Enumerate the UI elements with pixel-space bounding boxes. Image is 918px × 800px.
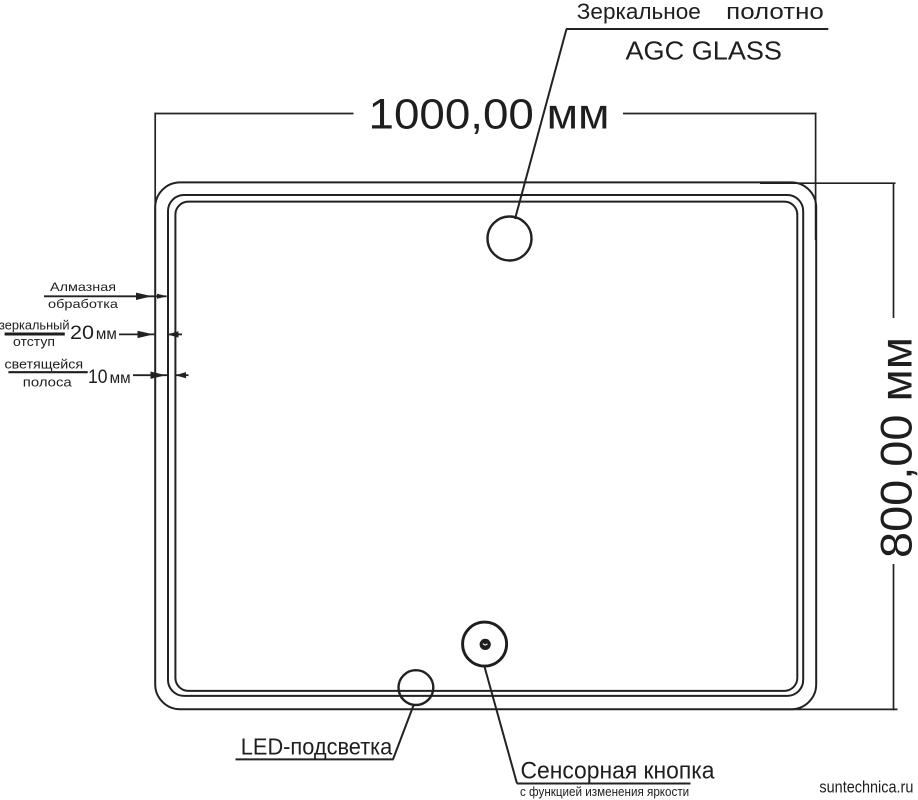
svg-text:зеркальный: зеркальный bbox=[0, 317, 70, 332]
svg-text:800,00 мм: 800,00 мм bbox=[873, 337, 918, 558]
svg-text:10: 10 bbox=[88, 366, 108, 388]
svg-text:Сенсорная кнопка: Сенсорная кнопка bbox=[521, 757, 716, 784]
svg-text:suntechnica.ru: suntechnica.ru bbox=[819, 778, 913, 797]
svg-text:1000,00 мм: 1000,00 мм bbox=[369, 91, 610, 138]
svg-text:отступ: отступ bbox=[13, 334, 55, 349]
svg-text:AGC GLASS: AGC GLASS bbox=[626, 38, 783, 66]
svg-text:мм: мм bbox=[96, 326, 117, 343]
svg-text:Зеркальное: Зеркальное bbox=[577, 0, 701, 24]
svg-text:LED-подсветка: LED-подсветка bbox=[241, 734, 393, 760]
svg-text:полоса: полоса bbox=[23, 375, 73, 390]
svg-text:мм: мм bbox=[110, 370, 131, 387]
svg-text:с функцией изменения яркости: с функцией изменения яркости bbox=[520, 784, 689, 799]
svg-text:20: 20 bbox=[70, 322, 94, 344]
svg-text:обработка: обработка bbox=[48, 297, 118, 311]
svg-text:полотно: полотно bbox=[726, 0, 824, 24]
svg-text:светящейся: светящейся bbox=[5, 356, 84, 371]
svg-text:Алмазная: Алмазная bbox=[50, 280, 116, 294]
